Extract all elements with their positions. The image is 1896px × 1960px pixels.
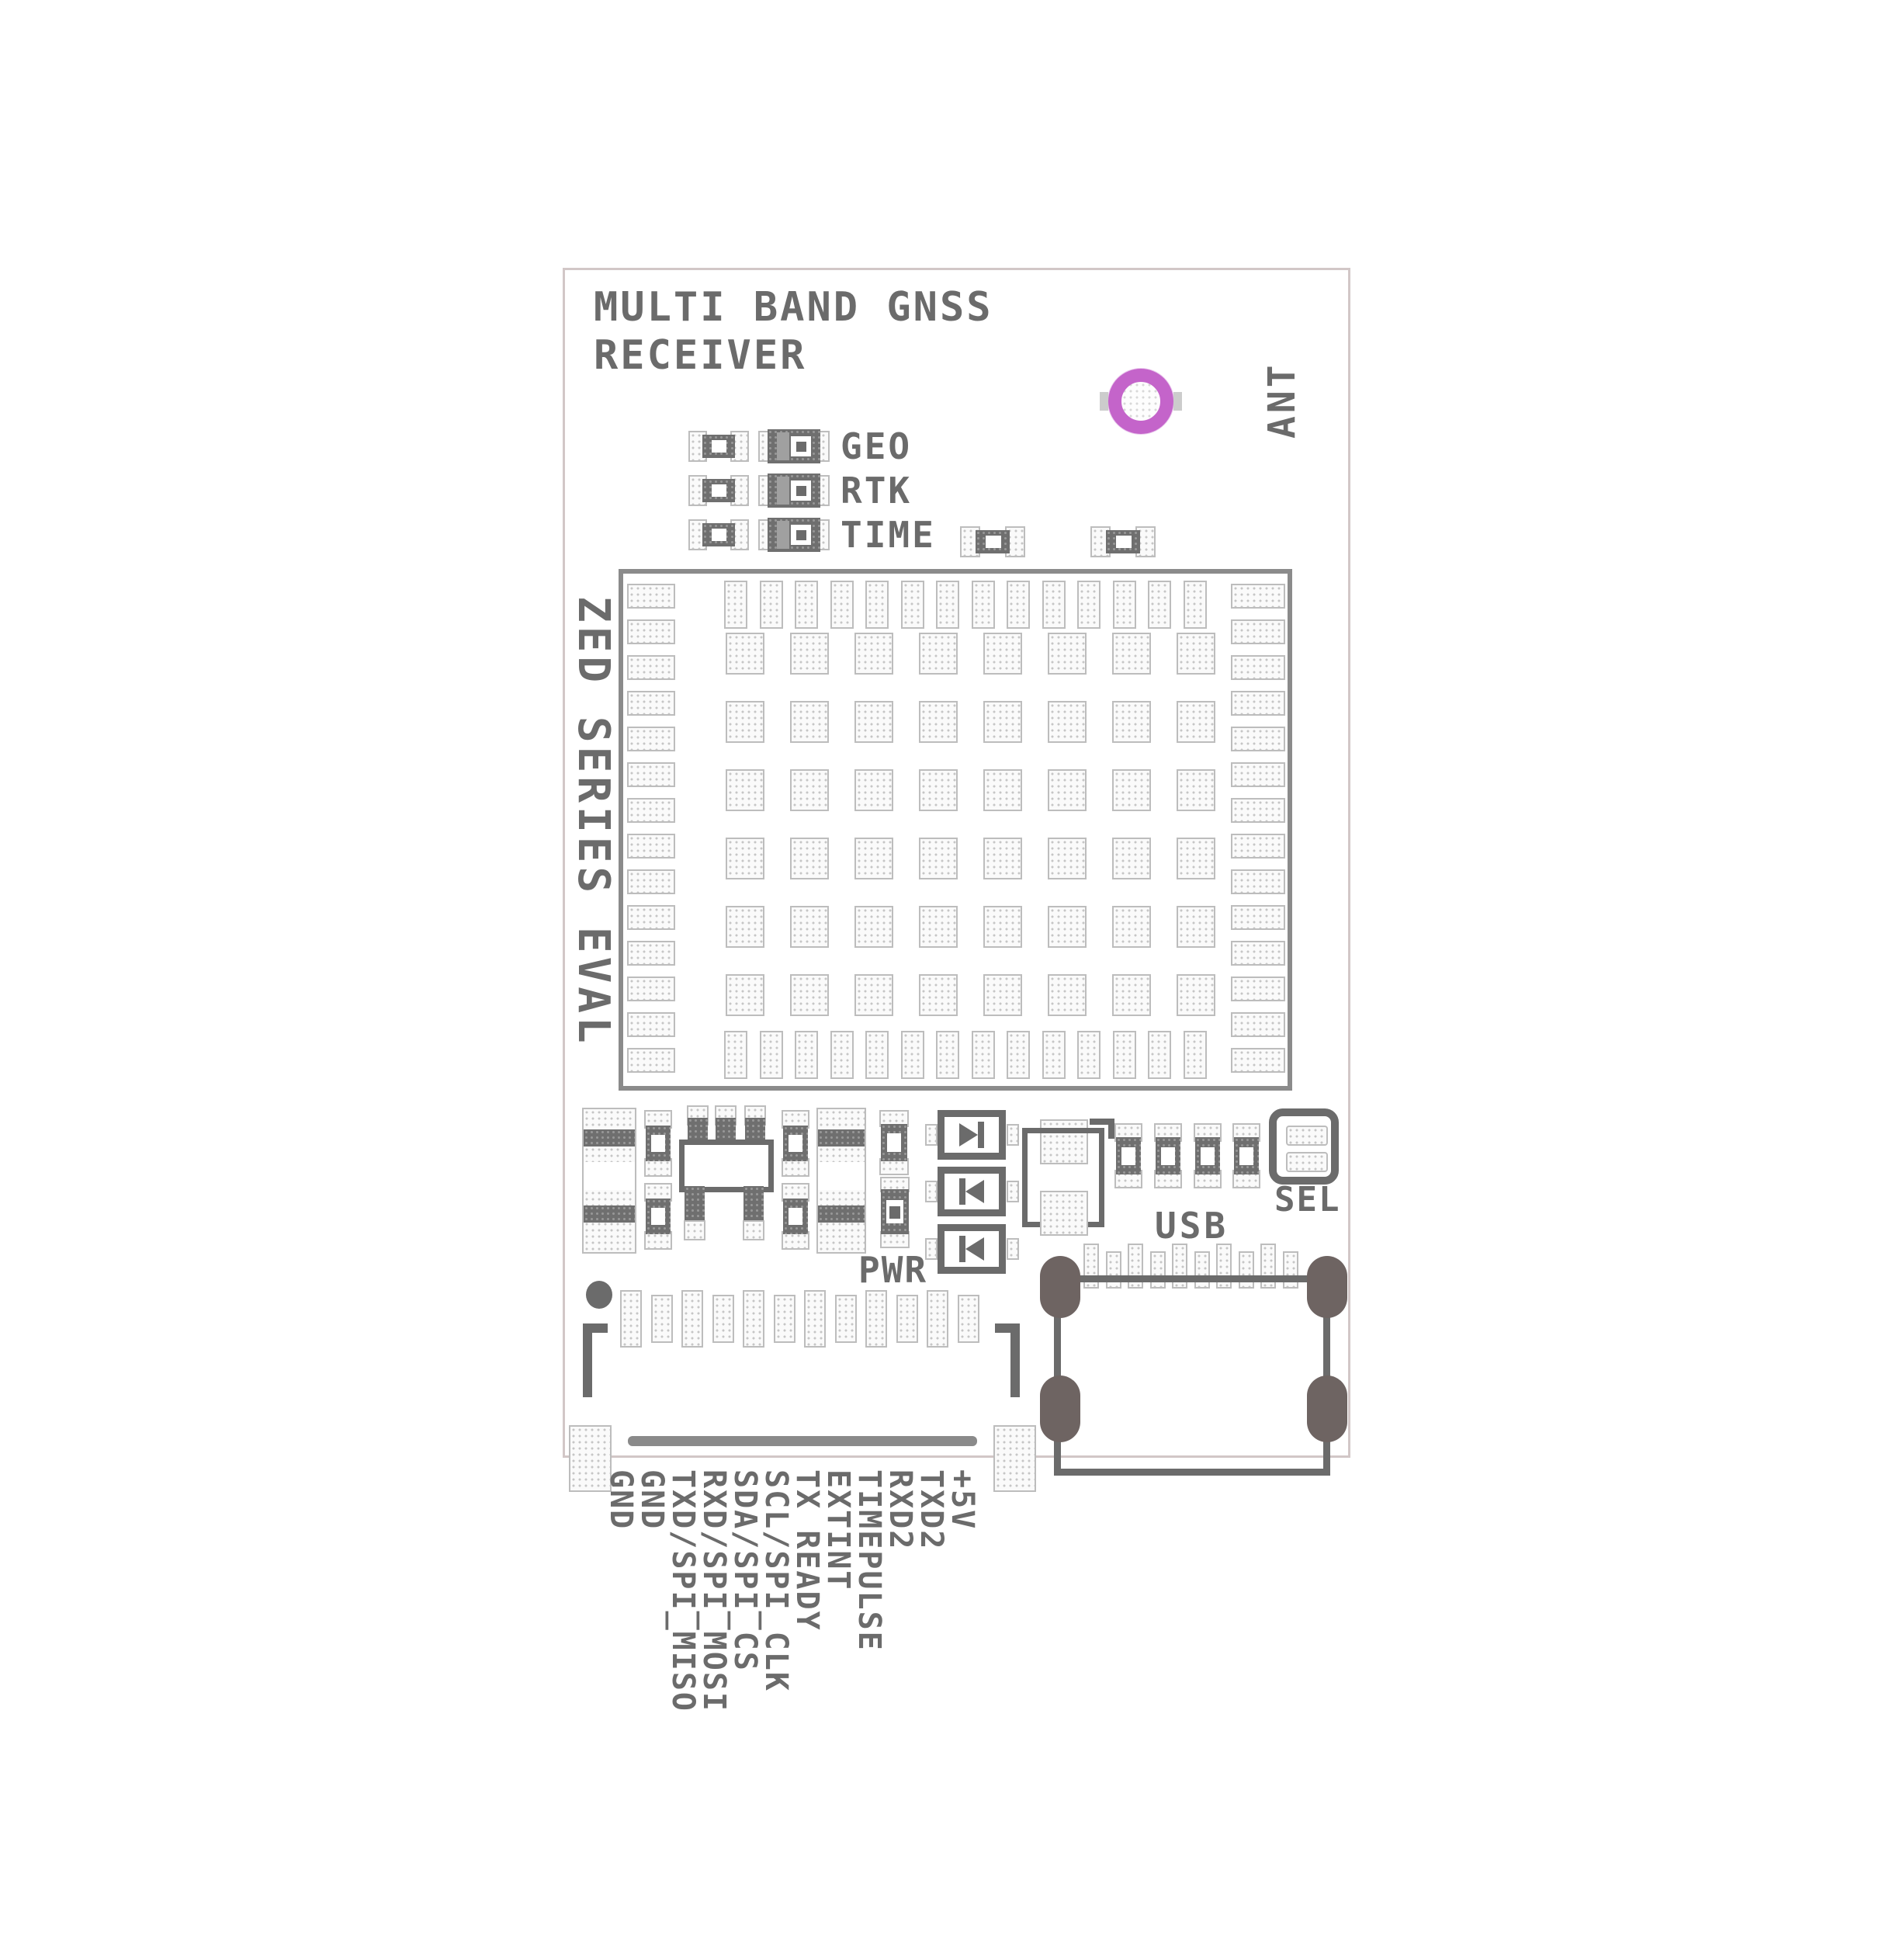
header-pin-pad: [681, 1290, 703, 1348]
module-pad-grid: [1177, 633, 1215, 675]
pad: [1040, 1191, 1088, 1236]
module-pad-grid: [1177, 701, 1215, 743]
usb-shield-pad: [1040, 1256, 1080, 1318]
diode-symbol-cathode-left: [965, 1180, 984, 1203]
capacitor: [582, 1108, 636, 1254]
module-pad-grid: [1048, 974, 1087, 1016]
pad: [819, 475, 830, 506]
ic-pin: [685, 1186, 705, 1223]
module-pad-right: [1231, 655, 1285, 680]
resistor-window: [712, 484, 726, 497]
module-pad-left: [627, 619, 675, 644]
led-die: [796, 442, 806, 452]
resistor-window: [1239, 1147, 1253, 1165]
module-pad-grid: [983, 838, 1022, 879]
module-pad-grid: [1112, 633, 1151, 675]
resistor-window: [1121, 1147, 1135, 1165]
module-pad-grid: [790, 633, 829, 675]
module-pad-grid: [1177, 838, 1215, 879]
module-pad-bottom: [1113, 1031, 1136, 1079]
module-pad-grid: [726, 906, 764, 948]
module-side-text: ZED SERIES EVAL: [571, 596, 615, 1047]
diode-outline: [938, 1224, 1006, 1274]
pin-label: TX READY: [792, 1469, 823, 1632]
resistor-vertical: [879, 1110, 909, 1175]
module-pad-grid: [919, 769, 958, 811]
module-pad-grid: [726, 701, 764, 743]
module-pad-grid: [983, 769, 1022, 811]
module-pad-left: [627, 762, 675, 787]
resistor-vertical: [782, 1110, 809, 1177]
ic-pin: [743, 1186, 764, 1223]
mounting-pad: [993, 1425, 1036, 1492]
led-half: [777, 477, 789, 505]
led-label-time: TIME: [841, 517, 936, 553]
board-title-line2: RECEIVER: [594, 331, 993, 380]
pin-label: +5V: [947, 1469, 978, 1530]
module-pad-right: [1231, 1048, 1285, 1073]
led-half: [777, 521, 789, 549]
module-pad-grid: [790, 838, 829, 879]
module-pad-left: [627, 727, 675, 751]
pin-label: SDA/SPI_CS: [730, 1469, 761, 1672]
header-pin-pad: [865, 1290, 887, 1348]
module-pad-left: [627, 655, 675, 680]
module-pad-grid: [790, 974, 829, 1016]
led-label-rtk: RTK: [841, 473, 912, 508]
module-pad-grid: [1112, 906, 1151, 948]
sel-contact: [1286, 1152, 1328, 1172]
module-pad-grid: [790, 701, 829, 743]
diode-box: [925, 1224, 1020, 1274]
usb-label: USB: [1155, 1208, 1229, 1244]
diode-box: [925, 1110, 1020, 1160]
diode-outline: [938, 1110, 1006, 1160]
module-pad-grid: [919, 701, 958, 743]
pin-label: SCL/SPI_CLK: [761, 1469, 792, 1692]
capacitor: [816, 1108, 866, 1254]
resistor-vertical: [644, 1110, 672, 1177]
resistor-window: [712, 440, 726, 453]
pad: [925, 1124, 938, 1146]
module-pad-right: [1231, 691, 1285, 716]
pad: [684, 1220, 705, 1240]
module-pad-left: [627, 1012, 675, 1037]
pad: [819, 431, 830, 462]
module-pad-top: [972, 581, 995, 629]
sel-label: SEL: [1274, 1183, 1340, 1217]
module-pad-bottom: [1007, 1031, 1030, 1079]
diode-symbol-bar: [959, 1236, 965, 1262]
module-pad-bottom: [865, 1031, 889, 1079]
header-pin-pad: [712, 1295, 734, 1343]
header-pin-pad: [927, 1290, 948, 1348]
cap-band: [818, 1205, 865, 1223]
module-pad-grid: [919, 633, 958, 675]
usb-shield-pad: [1307, 1375, 1347, 1442]
module-pad-grid: [726, 633, 764, 675]
module-pad-left: [627, 977, 675, 1001]
module-pad-bottom: [1042, 1031, 1066, 1079]
module-pad-top: [865, 581, 889, 629]
module-pad-grid: [919, 974, 958, 1016]
diode-box: [925, 1167, 1020, 1216]
diode-symbol-cathode-left: [965, 1237, 984, 1261]
module-pad-top: [795, 581, 818, 629]
pin-label: GND: [605, 1469, 636, 1530]
module-pad-grid: [983, 633, 1022, 675]
module-pad-right: [1231, 727, 1285, 751]
module-pad-right: [1231, 977, 1285, 1001]
sel-button: [1269, 1108, 1339, 1185]
led-die: [796, 530, 806, 540]
module-pad-grid: [1177, 906, 1215, 948]
corner-mark: [1108, 1119, 1114, 1139]
ant-pad-nub: [1173, 392, 1182, 411]
module-pad-left: [627, 941, 675, 966]
header-pin-pad: [804, 1290, 826, 1348]
module-pad-grid: [854, 974, 893, 1016]
module-pad-top: [724, 581, 747, 629]
resistor-window: [651, 1208, 665, 1225]
module-pad-grid: [854, 838, 893, 879]
ant-pad-nub: [1100, 392, 1108, 411]
module-pad-top: [1148, 581, 1171, 629]
pin-label: RXD/SPI_MOSI: [698, 1469, 730, 1712]
module-pad-grid: [726, 769, 764, 811]
module-pad-bottom: [795, 1031, 818, 1079]
resistor-vertical: [1114, 1123, 1142, 1188]
module-pad-grid: [1112, 769, 1151, 811]
module-pad-bottom: [830, 1031, 854, 1079]
resistor-window: [986, 536, 1001, 548]
led-component: [758, 518, 830, 552]
module-pad-grid: [1048, 633, 1087, 675]
led-component: [758, 429, 830, 463]
module-pad-right: [1231, 619, 1285, 644]
resistor-window: [1116, 536, 1132, 548]
module-pad-grid: [854, 906, 893, 948]
pin-label: GND: [636, 1469, 667, 1530]
pad: [1007, 1181, 1019, 1202]
module-pad-grid: [1112, 701, 1151, 743]
module-pad-grid: [919, 838, 958, 879]
module-pad-grid: [726, 974, 764, 1016]
module-pad-bottom: [972, 1031, 995, 1079]
pwr-label: PWR: [858, 1252, 927, 1288]
module-pad-right: [1231, 1012, 1285, 1037]
diode-die: [889, 1206, 900, 1219]
cap-band: [584, 1205, 635, 1223]
module-pad-right: [1231, 584, 1285, 609]
pin-label: EXTINT: [823, 1469, 854, 1591]
pin-label: TXD/SPI_MISO: [667, 1469, 698, 1712]
ant-label: ANT: [1263, 362, 1301, 439]
module-pad-grid: [726, 838, 764, 879]
module-pad-grid: [983, 701, 1022, 743]
pad: [925, 1181, 938, 1202]
module-pad-left: [627, 905, 675, 930]
header-pin-pad: [774, 1295, 795, 1343]
pin-label: TIMEPULSE: [854, 1469, 885, 1652]
module-pad-bottom: [724, 1031, 747, 1079]
module-pad-grid: [854, 701, 893, 743]
module-pad-top: [1007, 581, 1030, 629]
led-resistor: [688, 519, 749, 550]
module-pad-top: [1184, 581, 1207, 629]
corner-mark: [583, 1323, 592, 1397]
cap-gap: [584, 1162, 635, 1190]
module-pad-grid: [1048, 838, 1087, 879]
module-pad-grid: [1048, 769, 1087, 811]
ic-body: [679, 1140, 774, 1192]
diode-outline: [938, 1167, 1006, 1216]
module-pad-grid: [1048, 701, 1087, 743]
led-label-geo: GEO: [841, 428, 912, 464]
pad: [819, 519, 830, 550]
resistor-vertical: [1194, 1123, 1222, 1188]
pad: [1007, 1238, 1019, 1260]
usb-connector-outline: [1054, 1275, 1330, 1476]
led-die: [796, 486, 806, 496]
module-pad-right: [1231, 869, 1285, 894]
module-pad-grid: [854, 769, 893, 811]
module-pad-right: [1231, 762, 1285, 787]
usb-shield-pad: [1040, 1375, 1080, 1442]
resistor-window: [1201, 1147, 1215, 1165]
module-pad-grid: [1048, 906, 1087, 948]
corner-mark: [1010, 1323, 1020, 1397]
connector-body-edge: [628, 1436, 977, 1446]
module-pad-left: [627, 584, 675, 609]
module-pad-top: [1077, 581, 1101, 629]
module-pad-top: [830, 581, 854, 629]
small-resistor: [960, 526, 1025, 557]
header-pin-pad: [620, 1290, 642, 1348]
resistor-window: [789, 1135, 802, 1152]
module-pad-right: [1231, 941, 1285, 966]
pin-label: RXD2: [885, 1469, 916, 1550]
module-pad-bottom: [1077, 1031, 1101, 1079]
header-pin-pad: [958, 1295, 979, 1343]
diode-small: [880, 1177, 910, 1248]
pin1-dot: [586, 1281, 612, 1309]
module-pad-left: [627, 1048, 675, 1073]
module-pad-grid: [790, 769, 829, 811]
module-pad-top: [901, 581, 924, 629]
resistor-window: [789, 1208, 802, 1225]
module-pad-top: [1113, 581, 1136, 629]
module-pad-bottom: [936, 1031, 959, 1079]
pin-label: TXD2: [916, 1469, 947, 1550]
header-pin-pad: [896, 1295, 918, 1343]
header-pin-pad: [743, 1290, 764, 1348]
module-pad-grid: [983, 906, 1022, 948]
diode-symbol-bar: [959, 1178, 965, 1205]
resistor-window: [712, 529, 726, 541]
usb-shield-pad: [1307, 1256, 1347, 1318]
pcb-assembly-diagram: MULTI BAND GNSS RECEIVER GEO: [0, 0, 1896, 1960]
resistor-window: [887, 1133, 901, 1152]
pad: [1007, 1124, 1019, 1146]
module-pad-top: [936, 581, 959, 629]
board-title-line1: MULTI BAND GNSS: [594, 283, 993, 331]
module-pad-grid: [854, 633, 893, 675]
module-pad-grid: [1112, 838, 1151, 879]
board-title: MULTI BAND GNSS RECEIVER: [594, 283, 993, 380]
resistor-vertical: [1232, 1123, 1260, 1188]
module-pad-grid: [790, 906, 829, 948]
corner-mark: [995, 1323, 1020, 1333]
resistor-vertical: [782, 1183, 809, 1250]
module-pad-grid: [1112, 974, 1151, 1016]
module-pad-bottom: [901, 1031, 924, 1079]
module-pad-grid: [919, 906, 958, 948]
small-resistor: [1090, 526, 1156, 557]
resistor-window: [651, 1135, 665, 1152]
led-component: [758, 474, 830, 508]
module-pad-left: [627, 834, 675, 859]
module-pad-top: [760, 581, 783, 629]
ant-pad: [1108, 369, 1173, 434]
module-pad-bottom: [760, 1031, 783, 1079]
cap-gap: [818, 1162, 865, 1190]
module-pad-bottom: [1184, 1031, 1207, 1079]
cap-band: [818, 1129, 865, 1147]
led-resistor: [688, 431, 749, 462]
module-pad-bottom: [1148, 1031, 1171, 1079]
module-pad-left: [627, 869, 675, 894]
module-pad-left: [627, 798, 675, 823]
module-pad-right: [1231, 798, 1285, 823]
module-pad-right: [1231, 905, 1285, 930]
corner-mark: [583, 1323, 608, 1333]
diode-symbol-anode-right: [959, 1123, 978, 1147]
resistor-vertical: [1154, 1123, 1182, 1188]
module-pad-top: [1042, 581, 1066, 629]
module-pad-right: [1231, 834, 1285, 859]
sel-contact: [1286, 1126, 1328, 1146]
module-pad-grid: [983, 974, 1022, 1016]
resistor-vertical: [644, 1183, 672, 1250]
header-pin-pad: [651, 1295, 673, 1343]
led-half: [777, 432, 789, 460]
module-pad-left: [627, 691, 675, 716]
module-pad-grid: [1177, 769, 1215, 811]
module-pad-grid: [1177, 974, 1215, 1016]
pad: [743, 1220, 764, 1240]
diode-symbol-bar: [978, 1122, 984, 1148]
cap-band: [584, 1129, 635, 1147]
header-pin-pad: [835, 1295, 857, 1343]
resistor-window: [1161, 1147, 1175, 1165]
led-resistor: [688, 475, 749, 506]
